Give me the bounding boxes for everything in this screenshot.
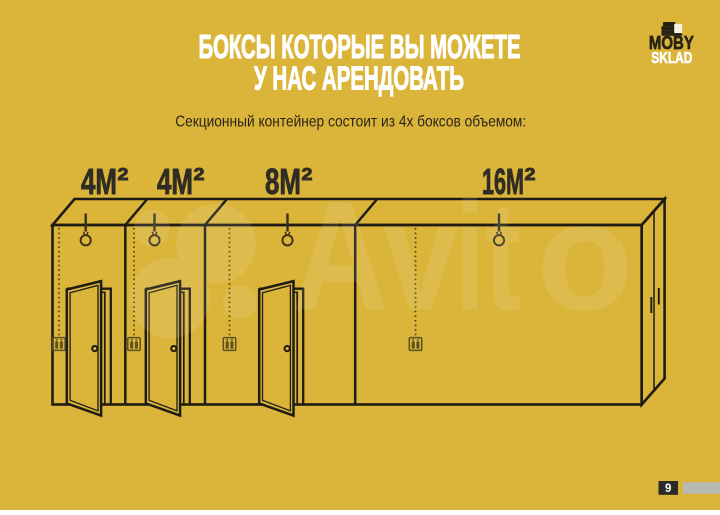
- svg-text:SKLAD: SKLAD: [651, 50, 692, 67]
- svg-text:2: 2: [194, 164, 205, 184]
- svg-text:4М: 4М: [81, 161, 117, 202]
- svg-text:4М: 4М: [157, 161, 193, 202]
- svg-text:2: 2: [525, 164, 536, 184]
- svg-text:9: 9: [665, 483, 671, 495]
- svg-text:o: o: [537, 170, 634, 343]
- svg-text:it: it: [455, 170, 521, 343]
- svg-text:У НАС АРЕНДОВАТЬ: У НАС АРЕНДОВАТЬ: [254, 60, 464, 97]
- svg-text:Av: Av: [292, 170, 458, 343]
- svg-text:2: 2: [118, 164, 129, 184]
- svg-text:Секционный контейнер состоит и: Секционный контейнер состоит из 4х боксо…: [175, 114, 526, 131]
